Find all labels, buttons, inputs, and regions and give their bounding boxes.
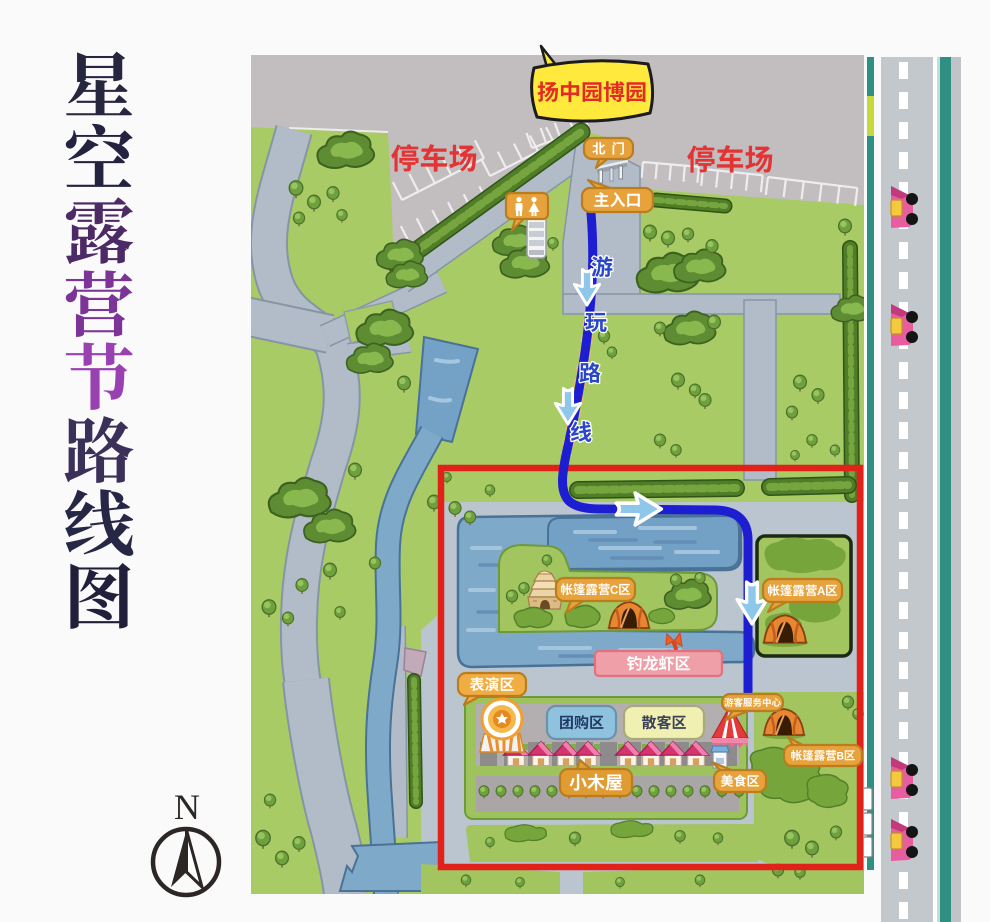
svg-text:C: C (610, 585, 618, 597)
svg-text:B: B (836, 751, 844, 763)
svg-text:A: A (817, 586, 825, 598)
svg-text:N: N (174, 787, 200, 827)
